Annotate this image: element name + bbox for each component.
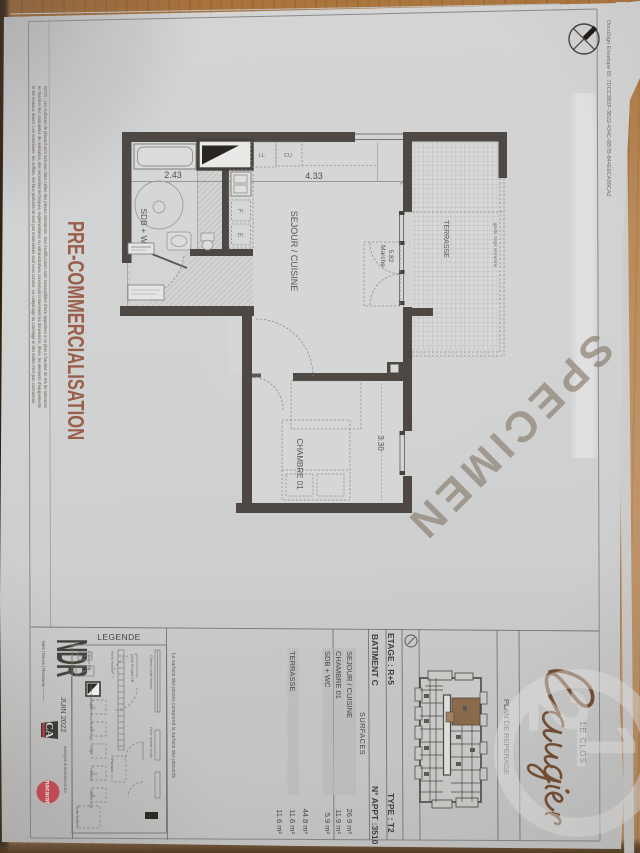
svg-text:SURFACES: SURFACES bbox=[358, 712, 367, 755]
svg-text:Marche: Marche bbox=[379, 245, 386, 267]
svg-text:en fonction des contraintes de: en fonction des contraintes de realisati… bbox=[37, 86, 42, 409]
svg-text:1: 1 bbox=[559, 722, 640, 769]
svg-text:Lave linge: Lave linge bbox=[89, 724, 93, 740]
svg-text:BATIMENT C: BATIMENT C bbox=[370, 634, 380, 686]
svg-text:11.6 m²: 11.6 m² bbox=[288, 809, 297, 834]
svg-text:BANQUE & ASSURANCES: BANQUE & ASSURANCES bbox=[63, 746, 67, 793]
svg-text:Cuisson: Cuisson bbox=[89, 768, 93, 781]
svg-text:nacarat: nacarat bbox=[43, 780, 50, 804]
svg-text:11.9 m²: 11.9 m² bbox=[334, 809, 343, 834]
svg-text:Chassis porte fenetre: Chassis porte fenetre bbox=[149, 655, 153, 689]
svg-text:44.8 m²: 44.8 m² bbox=[301, 809, 310, 835]
svg-text:Chassis fixe: Chassis fixe bbox=[87, 651, 91, 670]
svg-text:Volet Roulant VR: Volet Roulant VR bbox=[130, 655, 134, 683]
svg-text:5.9 m²: 5.9 m² bbox=[323, 813, 332, 835]
svg-text:DocuSign Envelope ID: 7DCC3B2F: DocuSign Envelope ID: 7DCC3B2F-3B22-434C… bbox=[605, 20, 611, 197]
svg-text:11.6 m²: 11.6 m² bbox=[275, 809, 284, 834]
svg-text:N° APPT :3510: N° APPT :3510 bbox=[370, 786, 380, 845]
svg-text:et les reseaux divers. Les ret: et les reseaux divers. Les retombees, le… bbox=[31, 86, 36, 404]
svg-text:garde corps serrurerie: garde corps serrurerie bbox=[493, 223, 498, 268]
svg-text:LL: LL bbox=[259, 153, 265, 159]
svg-text:5.82: 5.82 bbox=[387, 250, 394, 263]
svg-text:F: F bbox=[236, 209, 242, 213]
svg-text:Frigo: Frigo bbox=[89, 746, 93, 754]
svg-text:Lave vaisselle: Lave vaisselle bbox=[89, 702, 93, 725]
svg-text:TERRASSE: TERRASSE bbox=[442, 220, 449, 258]
svg-text:Toute hauteur: Toute hauteur bbox=[75, 806, 79, 829]
svg-text:SEJOUR / CUISINE: SEJOUR / CUISINE bbox=[345, 651, 354, 718]
svg-text:LEGENDE: LEGENDE bbox=[97, 632, 140, 642]
svg-text:SDB + WC: SDB + WC bbox=[323, 651, 332, 688]
svg-text:NOTA : Les surfaces de placa: NOTA : Les surfaces de placard sont incl… bbox=[43, 86, 48, 408]
svg-text:La surface des pieces comprend: La surface des pieces comprend la surfac… bbox=[170, 653, 176, 779]
svg-text:26.9 m²: 26.9 m² bbox=[345, 809, 354, 835]
svg-text:E: E bbox=[236, 233, 242, 237]
svg-text:Seche linge: Seche linge bbox=[89, 790, 93, 809]
svg-text:CHAMBRE 01: CHAMBRE 01 bbox=[334, 651, 343, 699]
svg-text:SPECIMEN: SPECIMEN bbox=[396, 324, 623, 551]
svg-text:JUIN 2022: JUIN 2022 bbox=[59, 697, 68, 732]
svg-text:CA: CA bbox=[43, 722, 55, 738]
svg-text:CU: CU bbox=[284, 153, 292, 159]
svg-text:Neïs | Davso | Rousseau ———: Neïs | Davso | Rousseau ——— bbox=[41, 641, 46, 702]
svg-text:4.33: 4.33 bbox=[305, 171, 323, 181]
svg-text:TYPE : T2: TYPE : T2 bbox=[386, 793, 396, 833]
svg-text:CHAMBRE 01: CHAMBRE 01 bbox=[295, 438, 304, 490]
svg-text:3.30: 3.30 bbox=[376, 435, 385, 451]
svg-text:SEJOUR / CUISINE: SEJOUR / CUISINE bbox=[289, 211, 299, 292]
svg-text:TERRASSE: TERRASSE bbox=[288, 651, 297, 691]
svg-text:PRE-COMMERCIALISATION: PRE-COMMERCIALISATION bbox=[63, 221, 89, 440]
svg-text:ETAGE : R+5: ETAGE : R+5 bbox=[386, 633, 396, 685]
svg-text:Placard: Placard bbox=[110, 759, 114, 771]
svg-text:2.43: 2.43 bbox=[164, 170, 182, 180]
svg-text:Porte Fenetre: Porte Fenetre bbox=[110, 651, 114, 673]
svg-text:Porte fenetre coulis.: Porte fenetre coulis. bbox=[149, 727, 153, 759]
